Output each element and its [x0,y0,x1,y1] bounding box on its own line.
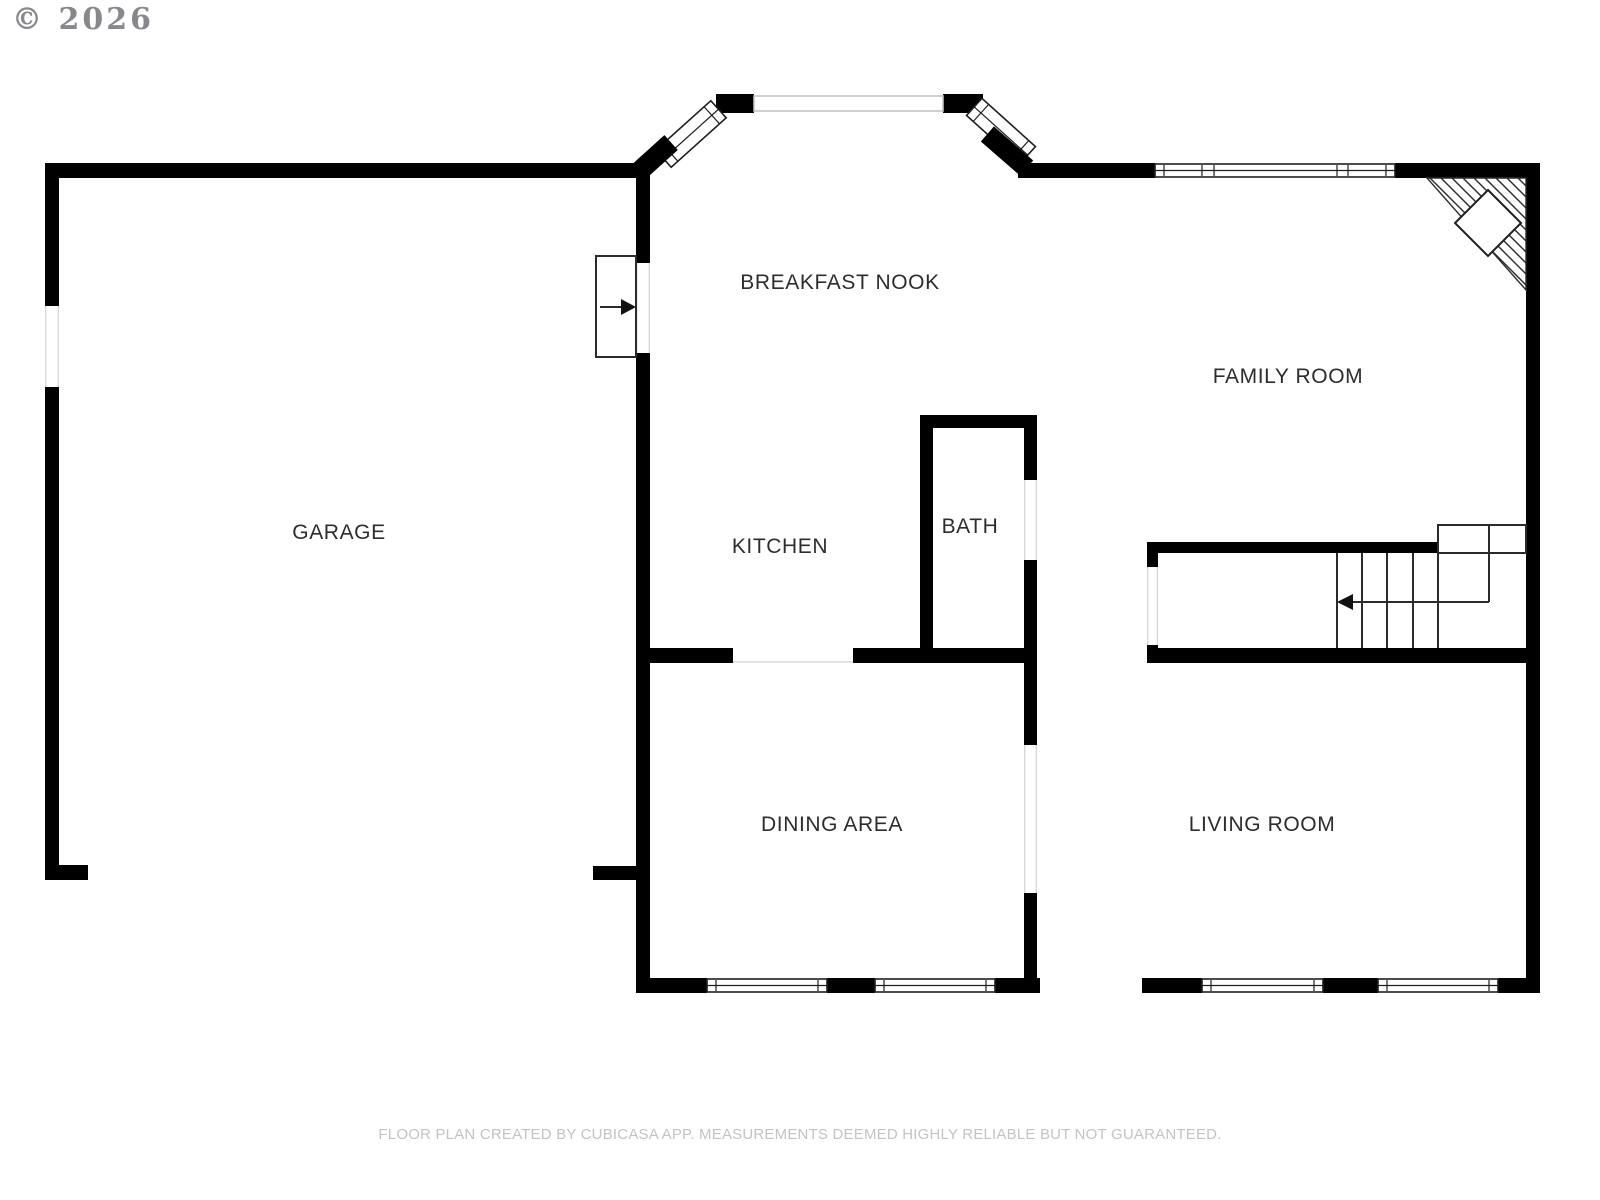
room-label-bath: BATH [942,515,999,539]
wall [1147,542,1158,567]
wall [920,415,1037,428]
floorplan-svg [0,0,1600,1200]
wall [45,865,88,880]
wall [45,163,59,306]
wall [853,648,1037,663]
wall [1147,542,1438,553]
wall [1498,978,1540,993]
fireplace-hatch-line [1331,178,1471,318]
fireplace-hatch-line [1287,178,1427,318]
wall [1323,978,1378,993]
room-label-dining-area: DINING AREA [761,813,903,837]
floorplan-page: © 2026 GARAGEBREAKFAST NOOKFAMILY ROOMKI… [0,0,1600,1200]
fireplace-hatch-line [1507,178,1600,318]
room-label-breakfast-nook: BREAKFAST NOOK [740,271,939,295]
bay-flat-window [754,96,943,111]
fireplace-hatch-line [1452,178,1592,318]
room-label-garage: GARAGE [292,521,385,545]
stair-arrow-icon [1337,594,1353,610]
wall-opening [1024,480,1037,560]
wall [636,648,733,663]
fireplace-hatch-line [1397,178,1537,318]
fireplace-hatch-line [1320,178,1460,318]
wall [1142,978,1202,993]
wall [1018,163,1155,178]
fireplace-hatch-line [1353,178,1493,318]
fireplace-hatch-line [1342,178,1482,318]
fireplace-hatch-line [1298,178,1438,318]
wall [1395,163,1540,178]
wall [636,978,707,993]
fireplace-hatch-line [1430,178,1570,318]
wall-opening [1024,745,1037,893]
fireplace-icon [1455,190,1521,256]
wall-opening [45,306,59,387]
fireplace-hatch-line [1386,178,1526,318]
wall-opening [636,263,650,353]
wall [636,353,650,993]
wall [716,94,754,113]
room-label-living-room: LIVING ROOM [1189,813,1336,837]
wall [827,978,875,993]
room-label-kitchen: KITCHEN [732,535,828,559]
footer-disclaimer: FLOOR PLAN CREATED BY CUBICASA APP. MEAS… [0,1126,1600,1143]
stair-landing [1438,525,1526,553]
wall [45,163,650,178]
wall [45,387,59,880]
wall [920,415,933,663]
wall-opening [1147,567,1158,645]
room-label-family-room: FAMILY ROOM [1213,365,1364,389]
wall [995,978,1040,993]
fireplace-hatch-line [1441,178,1581,318]
fireplace-hatch-group [1287,178,1600,318]
wall [1147,648,1540,663]
wall [1024,428,1037,480]
fireplace-hatch-line [1309,178,1449,318]
fireplace-hatch-line [1485,178,1600,318]
wall [1526,163,1540,993]
